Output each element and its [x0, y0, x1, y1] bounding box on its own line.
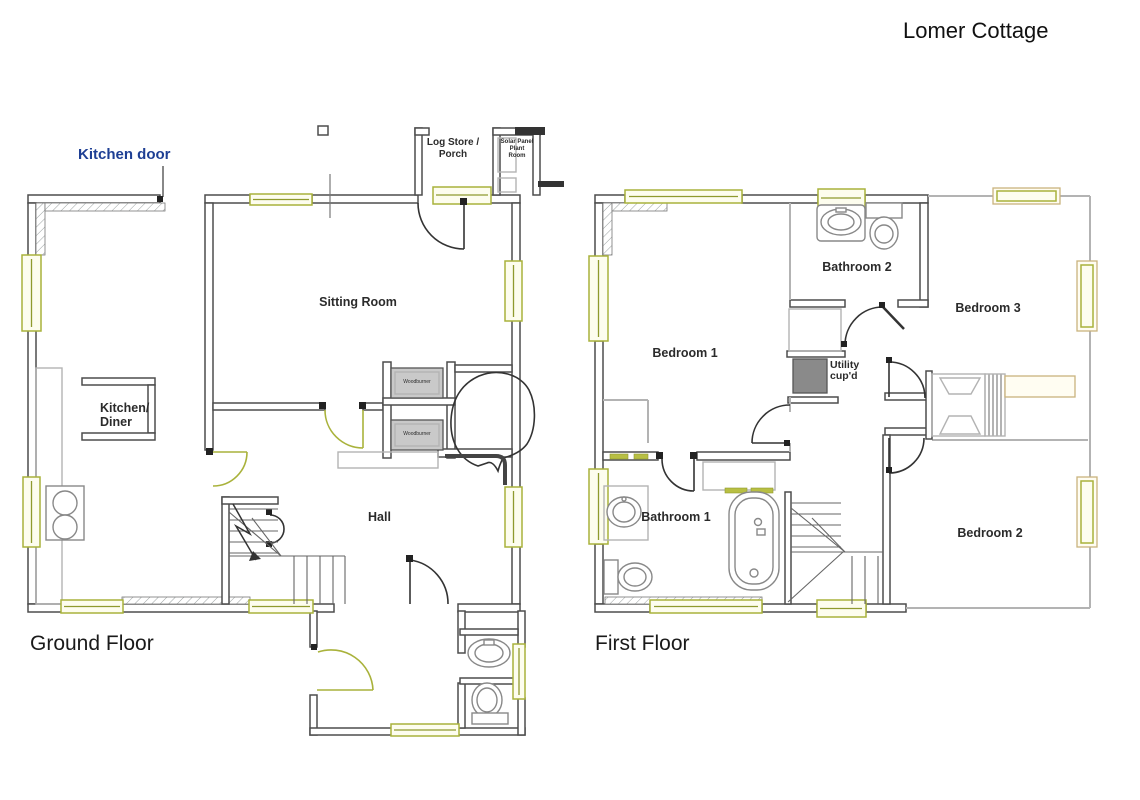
room-label-sitting-room: Sitting Room: [319, 295, 397, 309]
wardrobe-slatted-section: [985, 374, 1005, 436]
ground-stairs: [229, 504, 345, 604]
first-stairs: [785, 492, 883, 604]
room-label-bathroom-1: Bathroom 1: [641, 510, 710, 524]
floor-plan-drawing: [0, 0, 1140, 800]
first-floor-caption: First Floor: [595, 632, 690, 656]
drawing-title: Lomer Cottage: [903, 18, 1049, 44]
bathroom2-toilet-fixture: [866, 203, 902, 249]
kitchen-door-annotation: Kitchen door: [78, 146, 171, 163]
room-label-bathroom-2: Bathroom 2: [822, 260, 891, 274]
room-label-bedroom-2: Bedroom 2: [957, 526, 1022, 540]
room-label-utility-cupboard: Utility cup'd: [830, 360, 859, 382]
extension-basin-fixture: [468, 639, 510, 667]
wardrobe-shelf: [1005, 376, 1075, 397]
cooker-fixture: [46, 486, 84, 540]
room-label-log-store-porch: Log Store / Porch: [427, 137, 479, 160]
room-label-solar-room: Solar Panel Plant Room: [501, 139, 534, 160]
extension-toilet-fixture: [472, 683, 508, 724]
room-label-bedroom-3: Bedroom 3: [955, 301, 1020, 315]
woodburner-label-1: Woodburner: [403, 380, 430, 386]
room-label-hall: Hall: [368, 510, 391, 524]
ground-floor-caption: Ground Floor: [30, 632, 154, 656]
woodburner-label-2: Woodburner: [403, 432, 430, 438]
floor-plan-page: Lomer Cottage Kitchen door Log Store / P…: [0, 0, 1140, 800]
bathroom2-basin-fixture: [817, 205, 865, 241]
room-label-bedroom-1: Bedroom 1: [652, 346, 717, 360]
room-label-kitchen-diner: Kitchen/ Diner: [100, 401, 149, 430]
bath-fixture: [729, 492, 779, 590]
utility-cupboard-block: [793, 359, 827, 393]
first-floor-plan: [589, 188, 1097, 617]
bathroom1-toilet-fixture: [604, 560, 652, 594]
